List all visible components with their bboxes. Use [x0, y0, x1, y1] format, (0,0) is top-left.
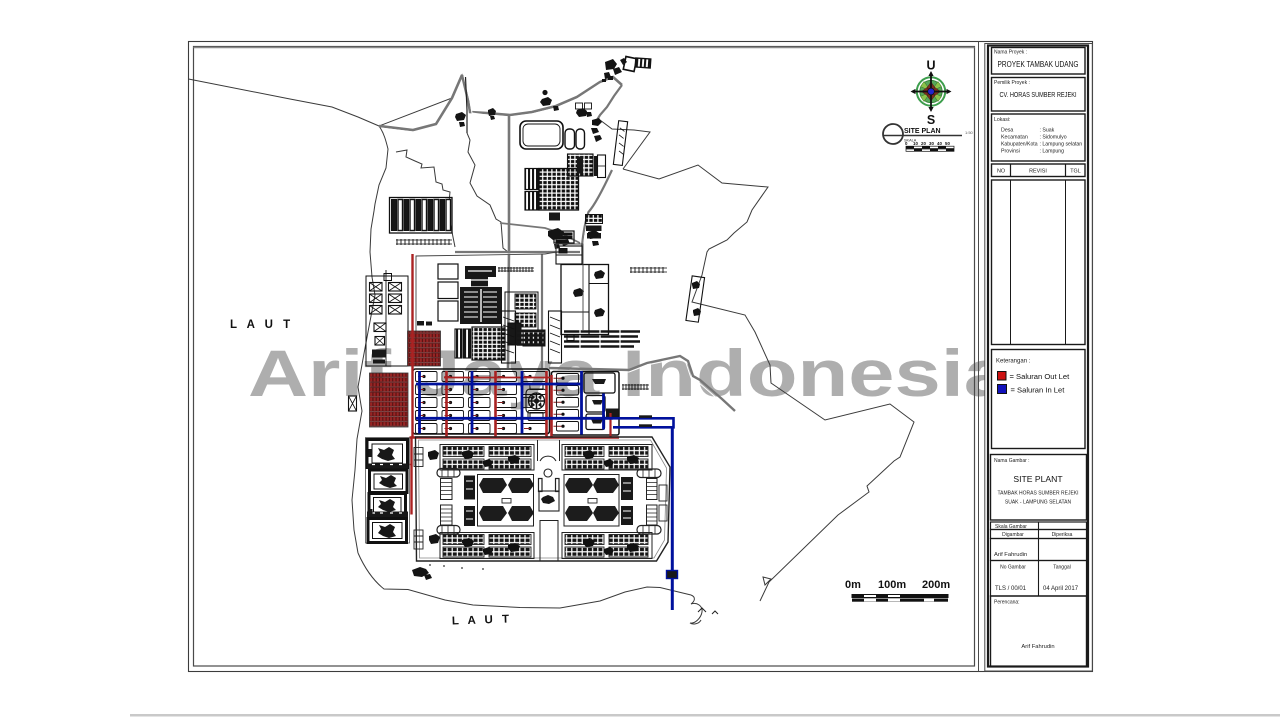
svg-text:SITE PLAN: SITE PLAN	[904, 128, 941, 135]
svg-text:Skala Gambar: Skala Gambar	[995, 524, 1027, 530]
svg-text:U: U	[926, 59, 935, 73]
svg-text:Nama Gambar :: Nama Gambar :	[994, 458, 1030, 464]
svg-text:PROYEK TAMBAK UDANG: PROYEK TAMBAK UDANG	[998, 60, 1079, 69]
svg-text:0m: 0m	[845, 579, 861, 591]
svg-text:TGL: TGL	[1070, 169, 1080, 175]
svg-text:: Sidomulyo: : Sidomulyo	[1040, 135, 1067, 141]
svg-text:10: 10	[913, 141, 918, 146]
svg-text:: Lampung: : Lampung	[1040, 149, 1065, 155]
svg-text:TAMBAK HORAS SUMBER REJEKI: TAMBAK HORAS SUMBER REJEKI	[997, 491, 1078, 497]
svg-text:Perencana:: Perencana:	[994, 600, 1020, 606]
svg-text:L A U T: L A U T	[452, 613, 513, 627]
svg-text:Nama Proyek :: Nama Proyek :	[994, 50, 1027, 56]
svg-text:Provinsi: Provinsi	[1001, 149, 1020, 155]
svg-text:: Suak: : Suak	[1040, 128, 1055, 134]
svg-text:Kabupaten/Kota: Kabupaten/Kota	[1001, 142, 1038, 148]
svg-text:CV. HORAS SUMBER REJEKI: CV. HORAS SUMBER REJEKI	[1000, 90, 1077, 99]
svg-text:S: S	[927, 113, 935, 127]
svg-text:L A U T: L A U T	[230, 319, 294, 331]
svg-text:30: 30	[929, 141, 934, 146]
svg-text:50: 50	[945, 141, 950, 146]
svg-text:SUAK - LAMPUNG SELATAN: SUAK - LAMPUNG SELATAN	[1005, 500, 1072, 506]
svg-text:100m: 100m	[878, 579, 906, 591]
svg-text:40: 40	[937, 141, 942, 146]
svg-text:Lokasi:: Lokasi:	[994, 117, 1010, 123]
svg-text:Arif Fahrudin: Arif Fahrudin	[1021, 644, 1054, 650]
svg-text:Diperiksa: Diperiksa	[1052, 532, 1073, 538]
svg-text:TLS / 00/01: TLS / 00/01	[995, 586, 1027, 592]
svg-text:Kecamatan: Kecamatan	[1001, 135, 1028, 141]
svg-text:= Saluran Out Let: = Saluran Out Let	[1010, 372, 1071, 381]
svg-text:REVISI: REVISI	[1029, 169, 1047, 175]
svg-text:SITE PLANT: SITE PLANT	[1013, 474, 1063, 484]
svg-text:Tanggal: Tanggal	[1053, 565, 1071, 571]
svg-text:No Gambar: No Gambar	[1000, 565, 1026, 571]
svg-text:NO: NO	[997, 169, 1005, 175]
svg-text:= Saluran In Let: = Saluran In Let	[1011, 386, 1066, 395]
svg-text:Desa: Desa	[1001, 128, 1013, 134]
svg-text:04 April 2017: 04 April 2017	[1043, 586, 1079, 592]
svg-text:Arif Fahrudin: Arif Fahrudin	[994, 552, 1027, 558]
svg-text:Keterangan :: Keterangan :	[996, 359, 1031, 365]
svg-text:200m: 200m	[922, 579, 950, 591]
svg-text:1:50: 1:50	[965, 130, 974, 135]
svg-text:Digambar: Digambar	[1002, 532, 1024, 538]
svg-text:Pemilik Proyek :: Pemilik Proyek :	[994, 80, 1030, 86]
svg-text:20: 20	[921, 141, 926, 146]
svg-text:: Lampung selatan: : Lampung selatan	[1040, 142, 1083, 148]
